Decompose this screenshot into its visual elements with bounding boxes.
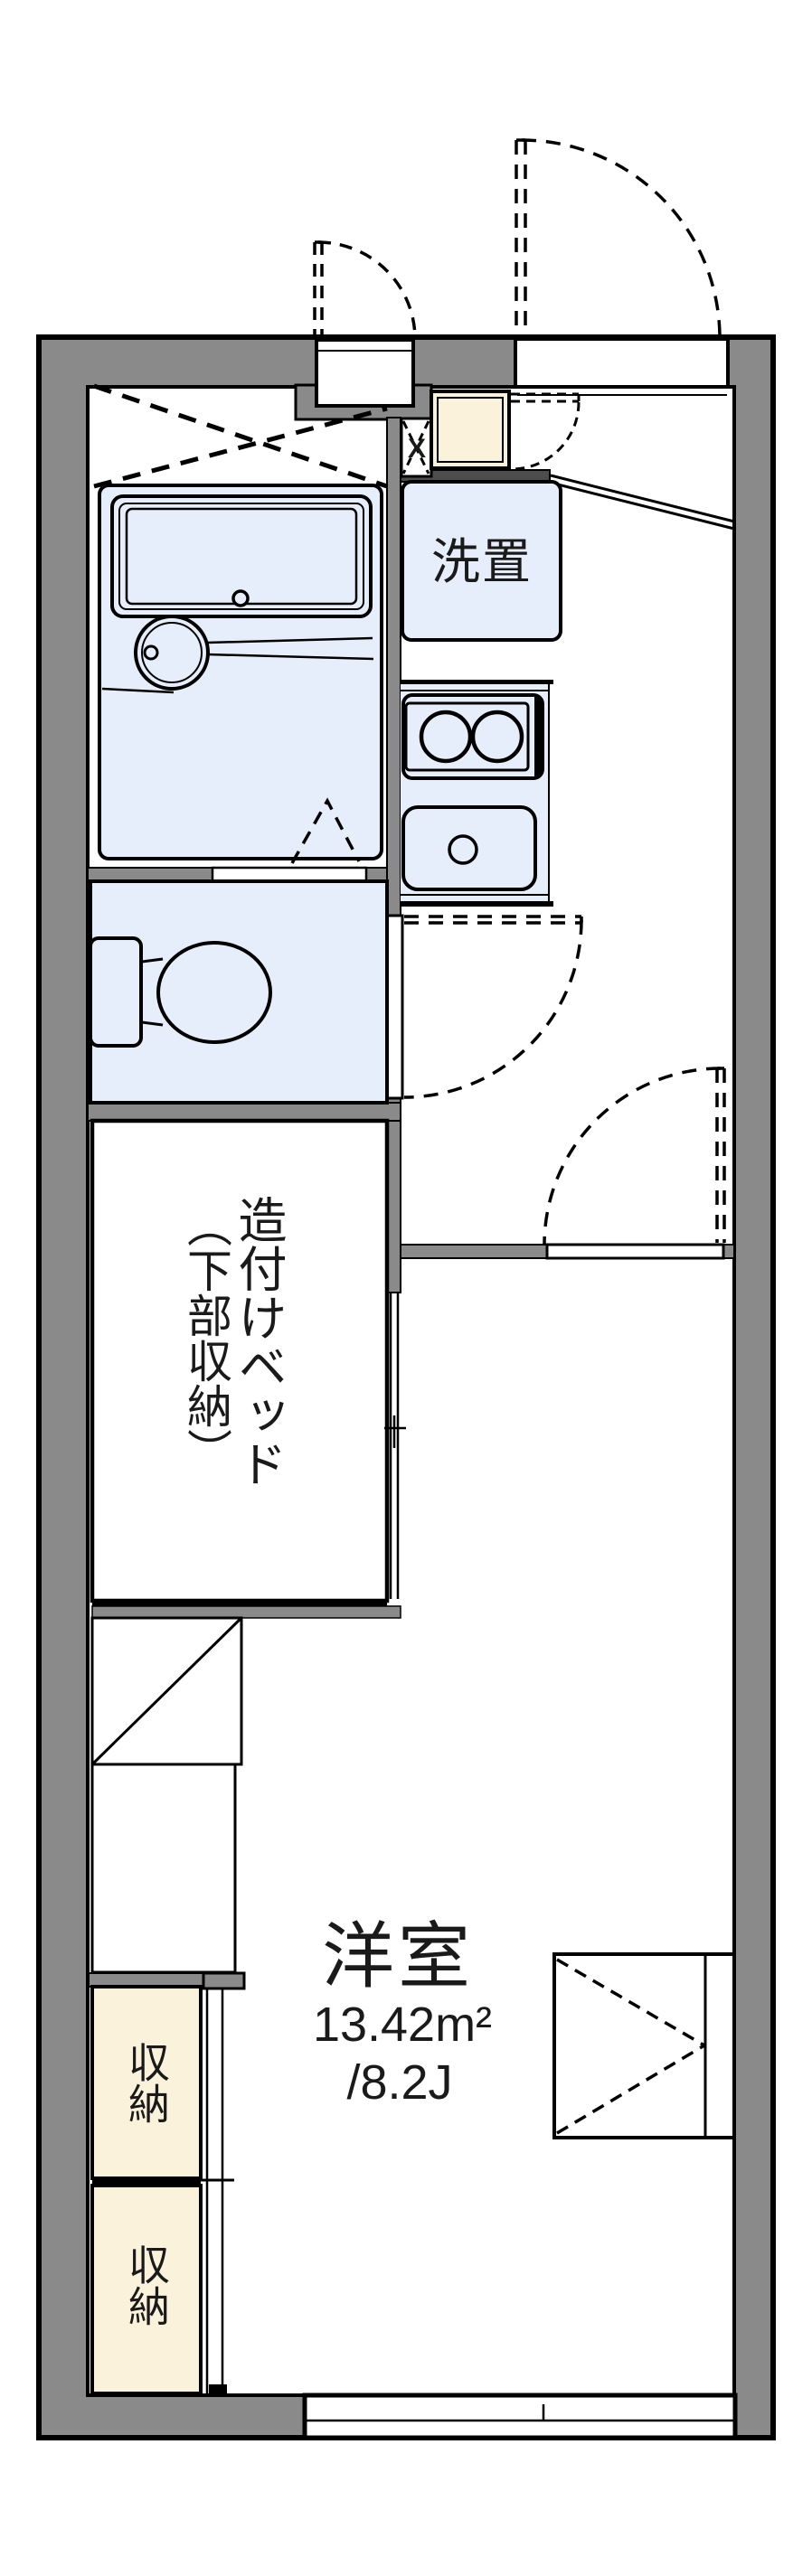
stove [403,695,543,778]
bathroom-wall [88,868,387,881]
window-end-block [209,2384,227,2397]
main-room-area-sqm: 13.42m² [313,1998,492,2052]
pipe-space: X [401,418,431,476]
toilet-wall [88,1103,401,1121]
main-room-wall [401,1245,734,1258]
pipe-space-mark: X [408,434,426,464]
storage-1-label: 収納 [123,2041,170,2124]
bathtub [112,496,371,616]
washroom-door-arc [404,917,581,1097]
storage-closet-1: 収納 [92,1987,201,2178]
floorplan-drawing: X 洗置 [0,0,812,2576]
shoe-cabinet [431,391,509,468]
genkan-step-line [551,475,734,529]
sink-drain [449,836,477,863]
toilet-bowl [158,943,270,1042]
bed-label-main: 造付けベッド [231,1195,286,1488]
built-in-bed-room: 造付けベッド （下部収納） [92,1121,406,1618]
bed-label-sub: （下部収納） [181,1202,231,1473]
closet-sliding-doors [201,1988,234,2393]
main-room-door-arc [544,1068,724,1245]
toilet-tank [90,938,141,1046]
washing-machine-area: 洗置 [402,482,561,640]
toilet-room [90,881,387,1103]
main-room-area-tatami: /8.2J [346,2055,452,2110]
entrance-door-arc [516,140,720,338]
shoe-cabinet-door-arc [511,394,579,469]
wash-basin [136,616,208,689]
burner-right [473,712,522,761]
tub-drain [233,591,248,606]
meter-box-recess [316,340,413,406]
bathroom [99,485,382,859]
entrance-doorway [515,339,728,395]
floorplan-page: X 洗置 [0,0,812,2576]
fold-down-table [554,1954,734,2138]
main-room-name: 洋室 [322,1916,474,1997]
meter-box-door-arc [315,242,415,339]
refrigerator-space [89,1618,244,1988]
washer-area-label: 洗置 [431,535,533,589]
burner-left [421,712,470,761]
main-room-doorway [547,1245,723,1258]
main-room: 洋室 13.42m² /8.2J [313,1916,492,2110]
sink [403,807,535,889]
kitchen [401,680,553,907]
storage-2-label: 収納 [123,2243,170,2327]
storage-closet-2: 収納 [92,2186,201,2393]
